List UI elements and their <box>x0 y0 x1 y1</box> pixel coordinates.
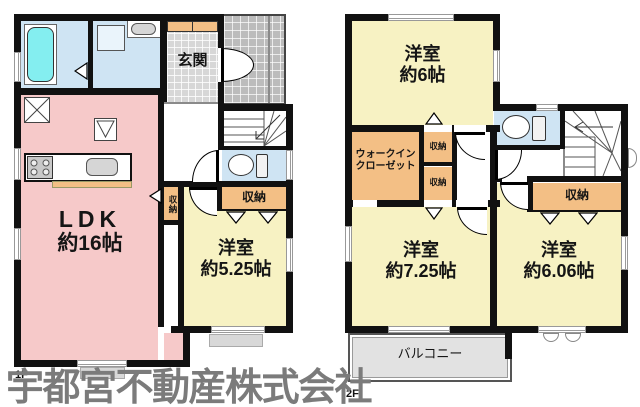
closet-fold-door-1 <box>226 211 246 224</box>
window-bedroom6-top <box>388 14 454 21</box>
closet-fold-door-up <box>425 112 443 125</box>
wic-opening <box>353 200 377 207</box>
closet-fold-door-2 <box>258 211 278 224</box>
company-watermark: 宇都宮不動産株式会社 <box>6 356 371 407</box>
refrigerator-space-symbol <box>24 97 50 123</box>
bedroom-6-label: 洋室 約6帖 <box>360 44 485 85</box>
toilet-bowl-1f <box>228 154 254 176</box>
closet-a-label: 収納 <box>424 142 452 152</box>
door-opening-6 <box>454 125 486 132</box>
basin-sink <box>131 23 156 35</box>
wall-segment <box>422 162 452 166</box>
door-opening-725 <box>456 200 488 207</box>
shutter-mark-1 <box>543 333 559 342</box>
plan-2f: 洋室 約6帖 ウォークイン クローゼット 収納 収納 収納 洋室 約7.25帖 … <box>0 0 640 407</box>
bedroom-725-label: 洋室 約7.25帖 <box>355 240 487 281</box>
window-toilet-right <box>286 150 293 180</box>
bath-folding-door <box>74 62 88 80</box>
closet-opening-top <box>424 125 452 132</box>
closet-big-fold-1 <box>540 212 560 225</box>
window-bedroom725-left <box>345 226 352 262</box>
ldk-label: LDK 約16帖 <box>26 206 154 257</box>
closet-b-label: 収納 <box>424 178 452 188</box>
toilet-tank-2f <box>532 116 546 141</box>
toilet-bowl-2f <box>502 115 530 139</box>
window-bedroom725-bottom <box>388 326 450 333</box>
closet-big-label: 収納 <box>533 189 621 203</box>
closet-big-fold-2 <box>578 212 598 225</box>
kitchen-sink <box>86 158 118 176</box>
closet-opening-bottom <box>424 200 452 207</box>
stair-window-bump <box>628 148 637 168</box>
entrance-label: 玄関 <box>167 52 218 69</box>
window-bedroom6-right <box>493 50 500 82</box>
wall-segment <box>452 132 457 207</box>
window-bedroom606-right <box>621 236 628 270</box>
wall-segment <box>345 14 352 333</box>
window-bath <box>14 52 21 82</box>
balcony-label: バルコニー <box>348 347 512 362</box>
wall-segment <box>527 176 621 182</box>
closet-fold-door-down <box>425 207 443 220</box>
stove <box>27 156 53 179</box>
window-bedroom606-bottom <box>538 326 586 333</box>
wall-segment <box>493 104 628 111</box>
shutter-mark-2 <box>565 333 581 342</box>
window-ldk-left-1 <box>14 148 21 180</box>
window-bedroom-right <box>286 238 293 272</box>
stairs-2f <box>565 111 621 176</box>
toilet-tank-1f <box>256 154 268 178</box>
washing-machine <box>97 25 125 51</box>
stairs-1f <box>224 111 286 146</box>
hood-symbol <box>94 118 117 141</box>
window-toilet2f-top <box>536 104 558 111</box>
closet-hall-door <box>149 188 162 204</box>
floor-plan-canvas: 玄関 LDK 約16帖 洋室 約5.25帖 収納 収納 1F <box>0 0 640 407</box>
closet-bedroom-label: 収納 <box>222 191 286 205</box>
wic-label: ウォークイン クローゼット <box>352 149 419 172</box>
window-ldk-left-2 <box>14 228 21 260</box>
bedroom6-door <box>455 132 485 160</box>
counter-front-panel <box>52 181 132 188</box>
wall-segment <box>621 104 628 333</box>
bedroom-525-label: 洋室 約5.25帖 <box>186 238 286 279</box>
bedroom-606-label: 洋室 約6.06帖 <box>500 240 618 281</box>
window-bedroom-bottom <box>211 326 265 333</box>
closet-hall-label: 収納 <box>166 190 177 218</box>
